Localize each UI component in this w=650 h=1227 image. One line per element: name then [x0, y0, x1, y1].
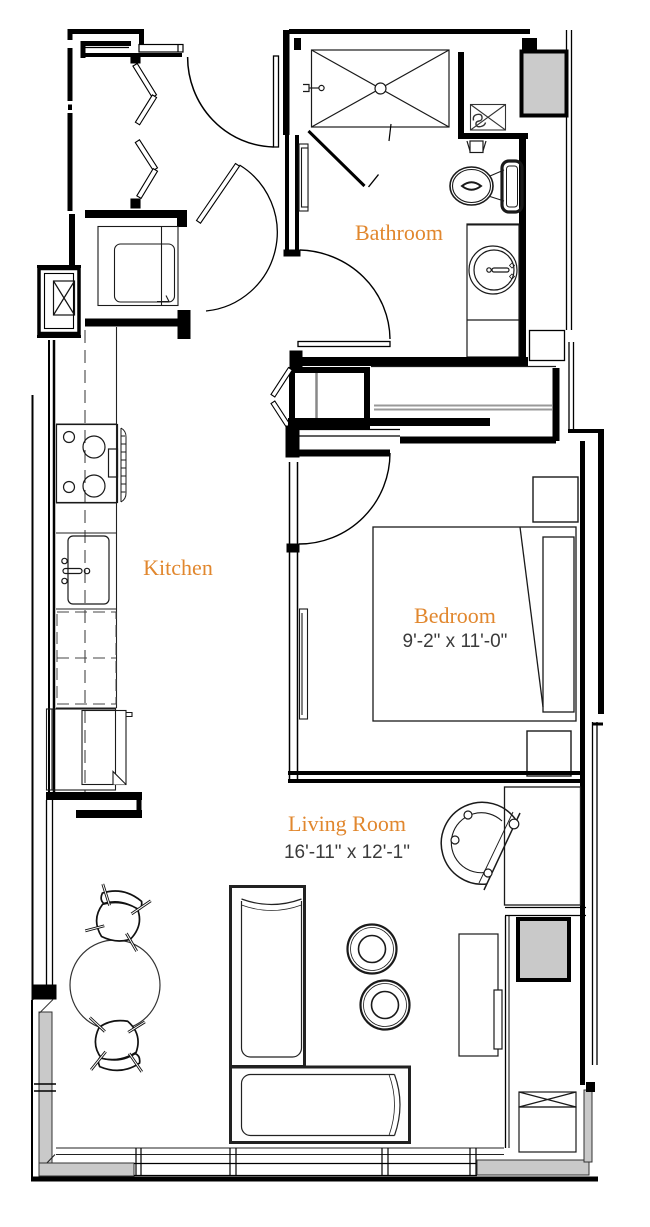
svg-text:16'-11" x 12'-1": 16'-11" x 12'-1"	[284, 842, 410, 863]
svg-text:9'-2" x 11'-0": 9'-2" x 11'-0"	[403, 631, 508, 652]
svg-text:Living Room: Living Room	[288, 811, 406, 836]
svg-text:Bedroom: Bedroom	[414, 603, 496, 628]
svg-text:Kitchen: Kitchen	[143, 555, 213, 580]
svg-text:Bathroom: Bathroom	[355, 220, 443, 245]
